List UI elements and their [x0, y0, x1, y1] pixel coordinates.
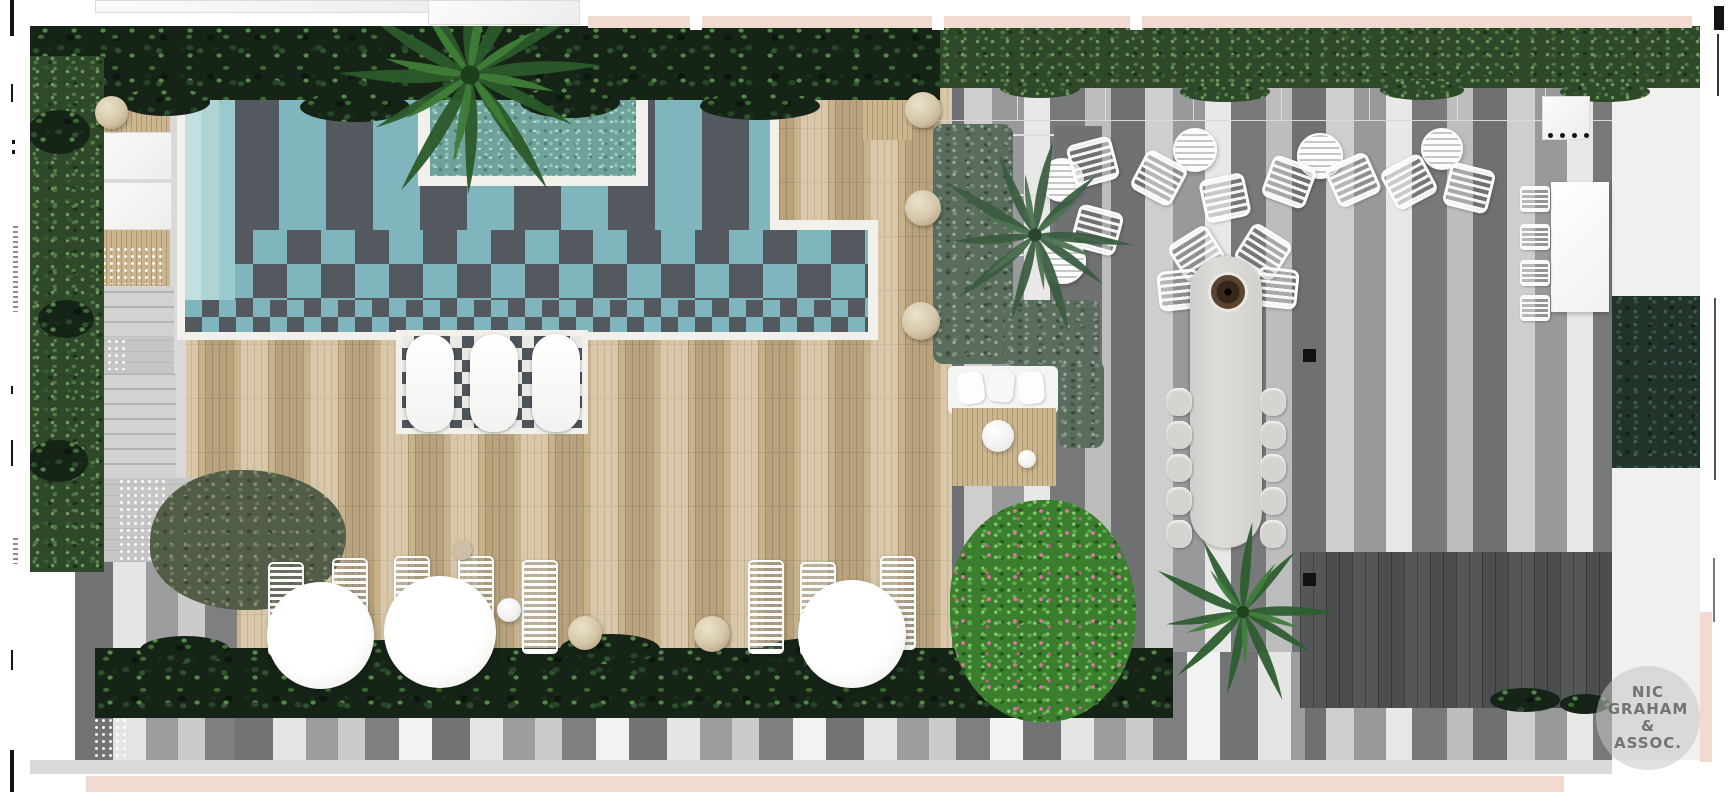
white-rect-table [1551, 182, 1609, 312]
watermark-line: & [1641, 718, 1655, 735]
in-pool-lounger [470, 334, 518, 432]
margin-mark [1714, 6, 1724, 30]
right-cream-band [1700, 612, 1712, 762]
margin-mark [10, 0, 14, 36]
margin-tick [11, 386, 13, 394]
palm-tree [910, 110, 1160, 360]
round-daybed [798, 580, 906, 688]
margin-mark [1714, 298, 1716, 480]
round-daybed [384, 576, 496, 688]
leaf-cluster [1000, 78, 1080, 98]
pool-water-checker-tiles [185, 230, 868, 300]
round-daybed [267, 582, 374, 689]
white-side-table [1018, 450, 1036, 468]
dining-chair [1166, 388, 1192, 416]
in-pool-lounger [406, 334, 454, 432]
sofa-cushion [1017, 371, 1046, 405]
margin-mark [11, 440, 13, 466]
wall-block [428, 0, 580, 25]
margin-annotation-text [13, 538, 18, 564]
leaf-cluster [140, 636, 230, 664]
slat-chair [1520, 186, 1550, 212]
fire-bowl [1208, 272, 1248, 312]
leaf-cluster [28, 110, 90, 154]
pool-water-small-checker [185, 300, 868, 332]
pergola-post [690, 14, 702, 30]
palm-tree [1128, 497, 1358, 727]
in-pool-lounger [532, 334, 580, 432]
leaf-cluster [700, 92, 820, 120]
margin-mark [11, 650, 13, 670]
perforated-mat [94, 246, 164, 284]
sun-lounger [748, 560, 784, 654]
margin-tick [12, 140, 15, 144]
grill-knob [1584, 133, 1589, 138]
leaf-cluster [38, 300, 94, 338]
studio-watermark: NIC GRAHAM & ASSOC. [1596, 666, 1700, 770]
pergola-post [1130, 14, 1142, 30]
slat-chair [1520, 224, 1550, 250]
flowering-shrub [950, 500, 1136, 722]
right-hedge-block [1612, 296, 1700, 468]
white-pouf [982, 420, 1014, 452]
timber-side-table [452, 540, 472, 560]
bottom-cream-band [86, 776, 1564, 792]
leaf-cluster [120, 88, 210, 116]
floor-drain [1303, 349, 1316, 362]
leaf-cluster [1490, 688, 1560, 712]
dining-chair [1260, 388, 1286, 416]
watermark-line: ASSOC. [1614, 735, 1682, 752]
stone-sphere [95, 96, 128, 129]
dining-chair [1260, 454, 1286, 482]
margin-mark [1717, 34, 1719, 96]
grill-knob [1548, 133, 1553, 138]
grill-knob [1560, 133, 1565, 138]
pool-entry-steps [185, 88, 245, 300]
stone-sphere [694, 616, 730, 652]
margin-tick [12, 150, 15, 154]
sun-lounger [522, 560, 558, 654]
sofa-cushion [986, 369, 1015, 404]
grill-knob [1572, 133, 1577, 138]
stone-sphere [568, 616, 602, 650]
wall-block [95, 0, 445, 13]
rooftop-terrace-plan-render: NIC GRAHAM & ASSOC. [0, 0, 1728, 792]
bottom-edge-strip [30, 760, 1612, 774]
margin-mark [10, 750, 14, 792]
dining-chair [1166, 421, 1192, 449]
slat-chair [1520, 260, 1550, 286]
sage-hedge-droop [1058, 360, 1104, 448]
sofa-cushion [956, 370, 986, 405]
pergola-post [932, 14, 944, 30]
palm-tree [310, 0, 630, 235]
margin-annotation-text [13, 226, 18, 312]
watermark-line: GRAHAM [1608, 701, 1689, 718]
dining-chair [1166, 454, 1192, 482]
watermark-line: NIC [1632, 684, 1664, 701]
sheet-left-margin [0, 0, 30, 792]
dining-chair [1260, 421, 1286, 449]
leaf-cluster [28, 440, 88, 482]
leaf-cluster [1380, 80, 1464, 100]
margin-mark [1713, 558, 1715, 622]
margin-mark [11, 84, 13, 102]
white-ball-table [497, 598, 521, 622]
leaf-cluster [1180, 82, 1270, 102]
wire-cube-chair [1198, 172, 1252, 225]
slat-chair [1520, 295, 1550, 321]
